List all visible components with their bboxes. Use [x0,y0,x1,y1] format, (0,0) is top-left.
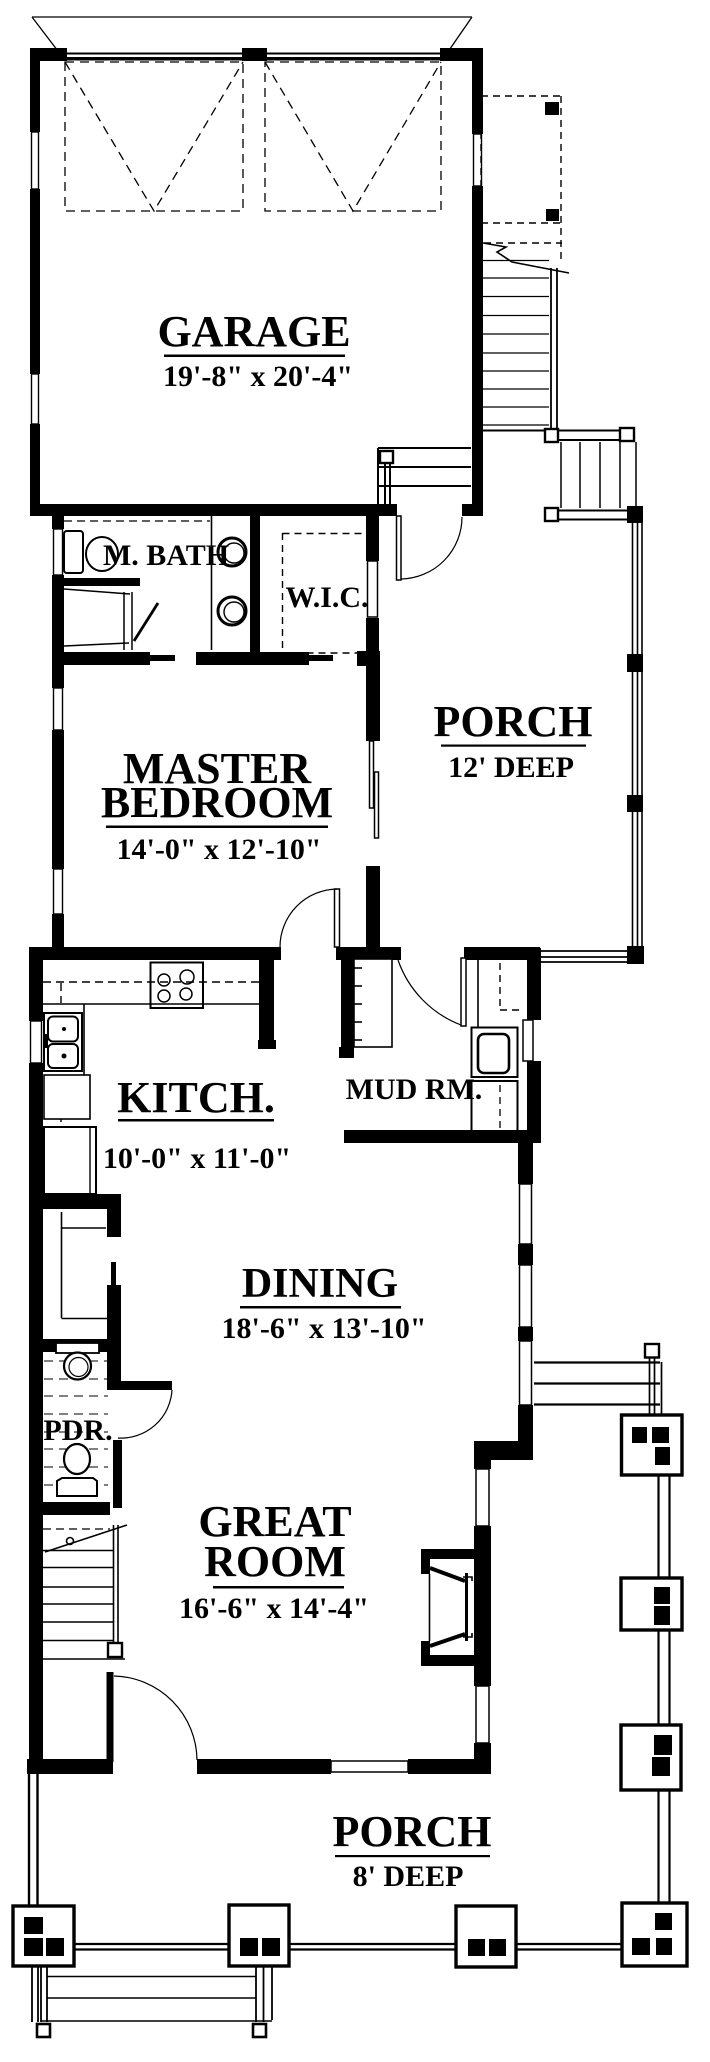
svg-text:18'-6" x 13'-10": 18'-6" x 13'-10" [222,1312,427,1345]
svg-text:14'-0" x 12'-10": 14'-0" x 12'-10" [117,833,322,866]
svg-text:KITCH.: KITCH. [117,1073,275,1122]
svg-text:ROOM: ROOM [204,1537,346,1586]
svg-text:GARAGE: GARAGE [157,307,350,356]
svg-text:DINING: DINING [242,1261,398,1307]
svg-text:16'-6" x 14'-4": 16'-6" x 14'-4" [179,1592,369,1625]
svg-text:8' DEEP: 8' DEEP [353,1860,464,1893]
svg-text:BEDROOM: BEDROOM [101,778,333,827]
svg-text:PORCH: PORCH [333,1807,492,1856]
svg-text:19'-8" x 20'-4": 19'-8" x 20'-4" [163,360,353,393]
svg-text:M. BATH: M. BATH [103,539,229,572]
svg-text:PORCH: PORCH [434,697,593,746]
svg-text:W.I.C.: W.I.C. [285,581,368,614]
svg-text:12' DEEP: 12' DEEP [448,751,574,784]
svg-text:MUD RM.: MUD RM. [346,1073,483,1106]
svg-text:PDR.: PDR. [43,1414,112,1447]
svg-text:10'-0" x 11'-0": 10'-0" x 11'-0" [103,1142,291,1175]
